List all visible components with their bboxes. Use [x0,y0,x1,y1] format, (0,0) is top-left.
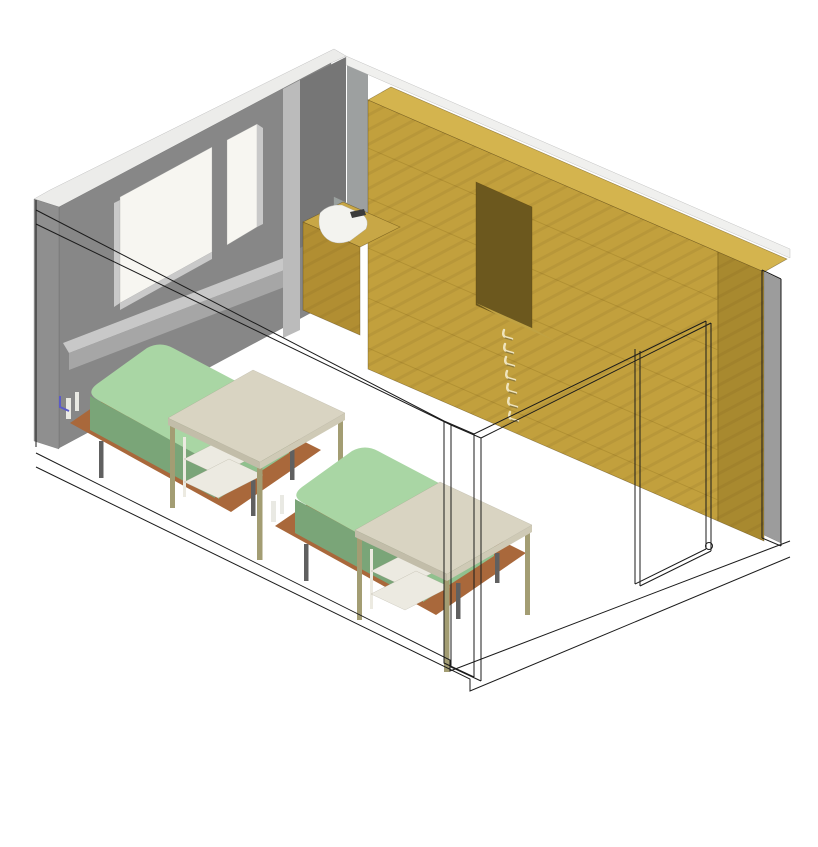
room-3d-viewport [0,0,818,847]
wood-wardrobe-wall [346,56,790,541]
window-frame-strip [257,124,263,227]
right-wall-strip [764,272,781,543]
room-3d-view [0,0,818,847]
wall-end-cap [34,199,59,449]
door-bottom-edge [635,549,706,584]
window-small-pane [227,124,257,245]
door-bottom-edge [640,551,711,586]
corner-strip-light [283,80,300,338]
wall-niche [476,182,532,330]
wood-grain-overlay [718,252,764,541]
